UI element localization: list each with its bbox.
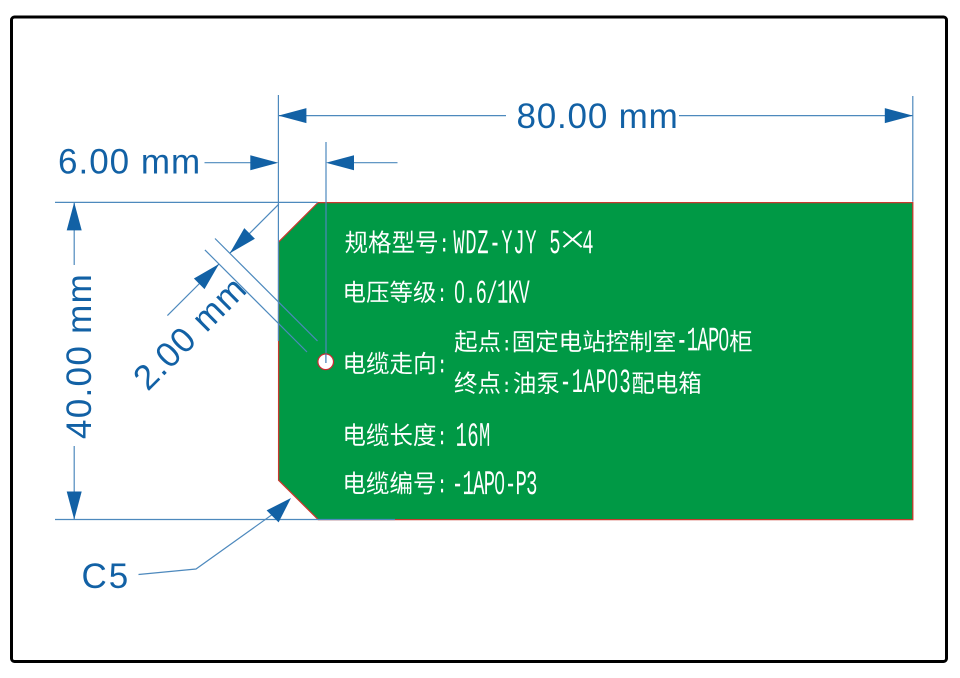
svg-text:6.00 mm: 6.00 mm (58, 143, 201, 182)
svg-text:80.00 mm: 80.00 mm (517, 97, 679, 136)
svg-text:40.00 mm: 40.00 mm (60, 273, 99, 439)
svg-text:C5: C5 (82, 557, 131, 596)
